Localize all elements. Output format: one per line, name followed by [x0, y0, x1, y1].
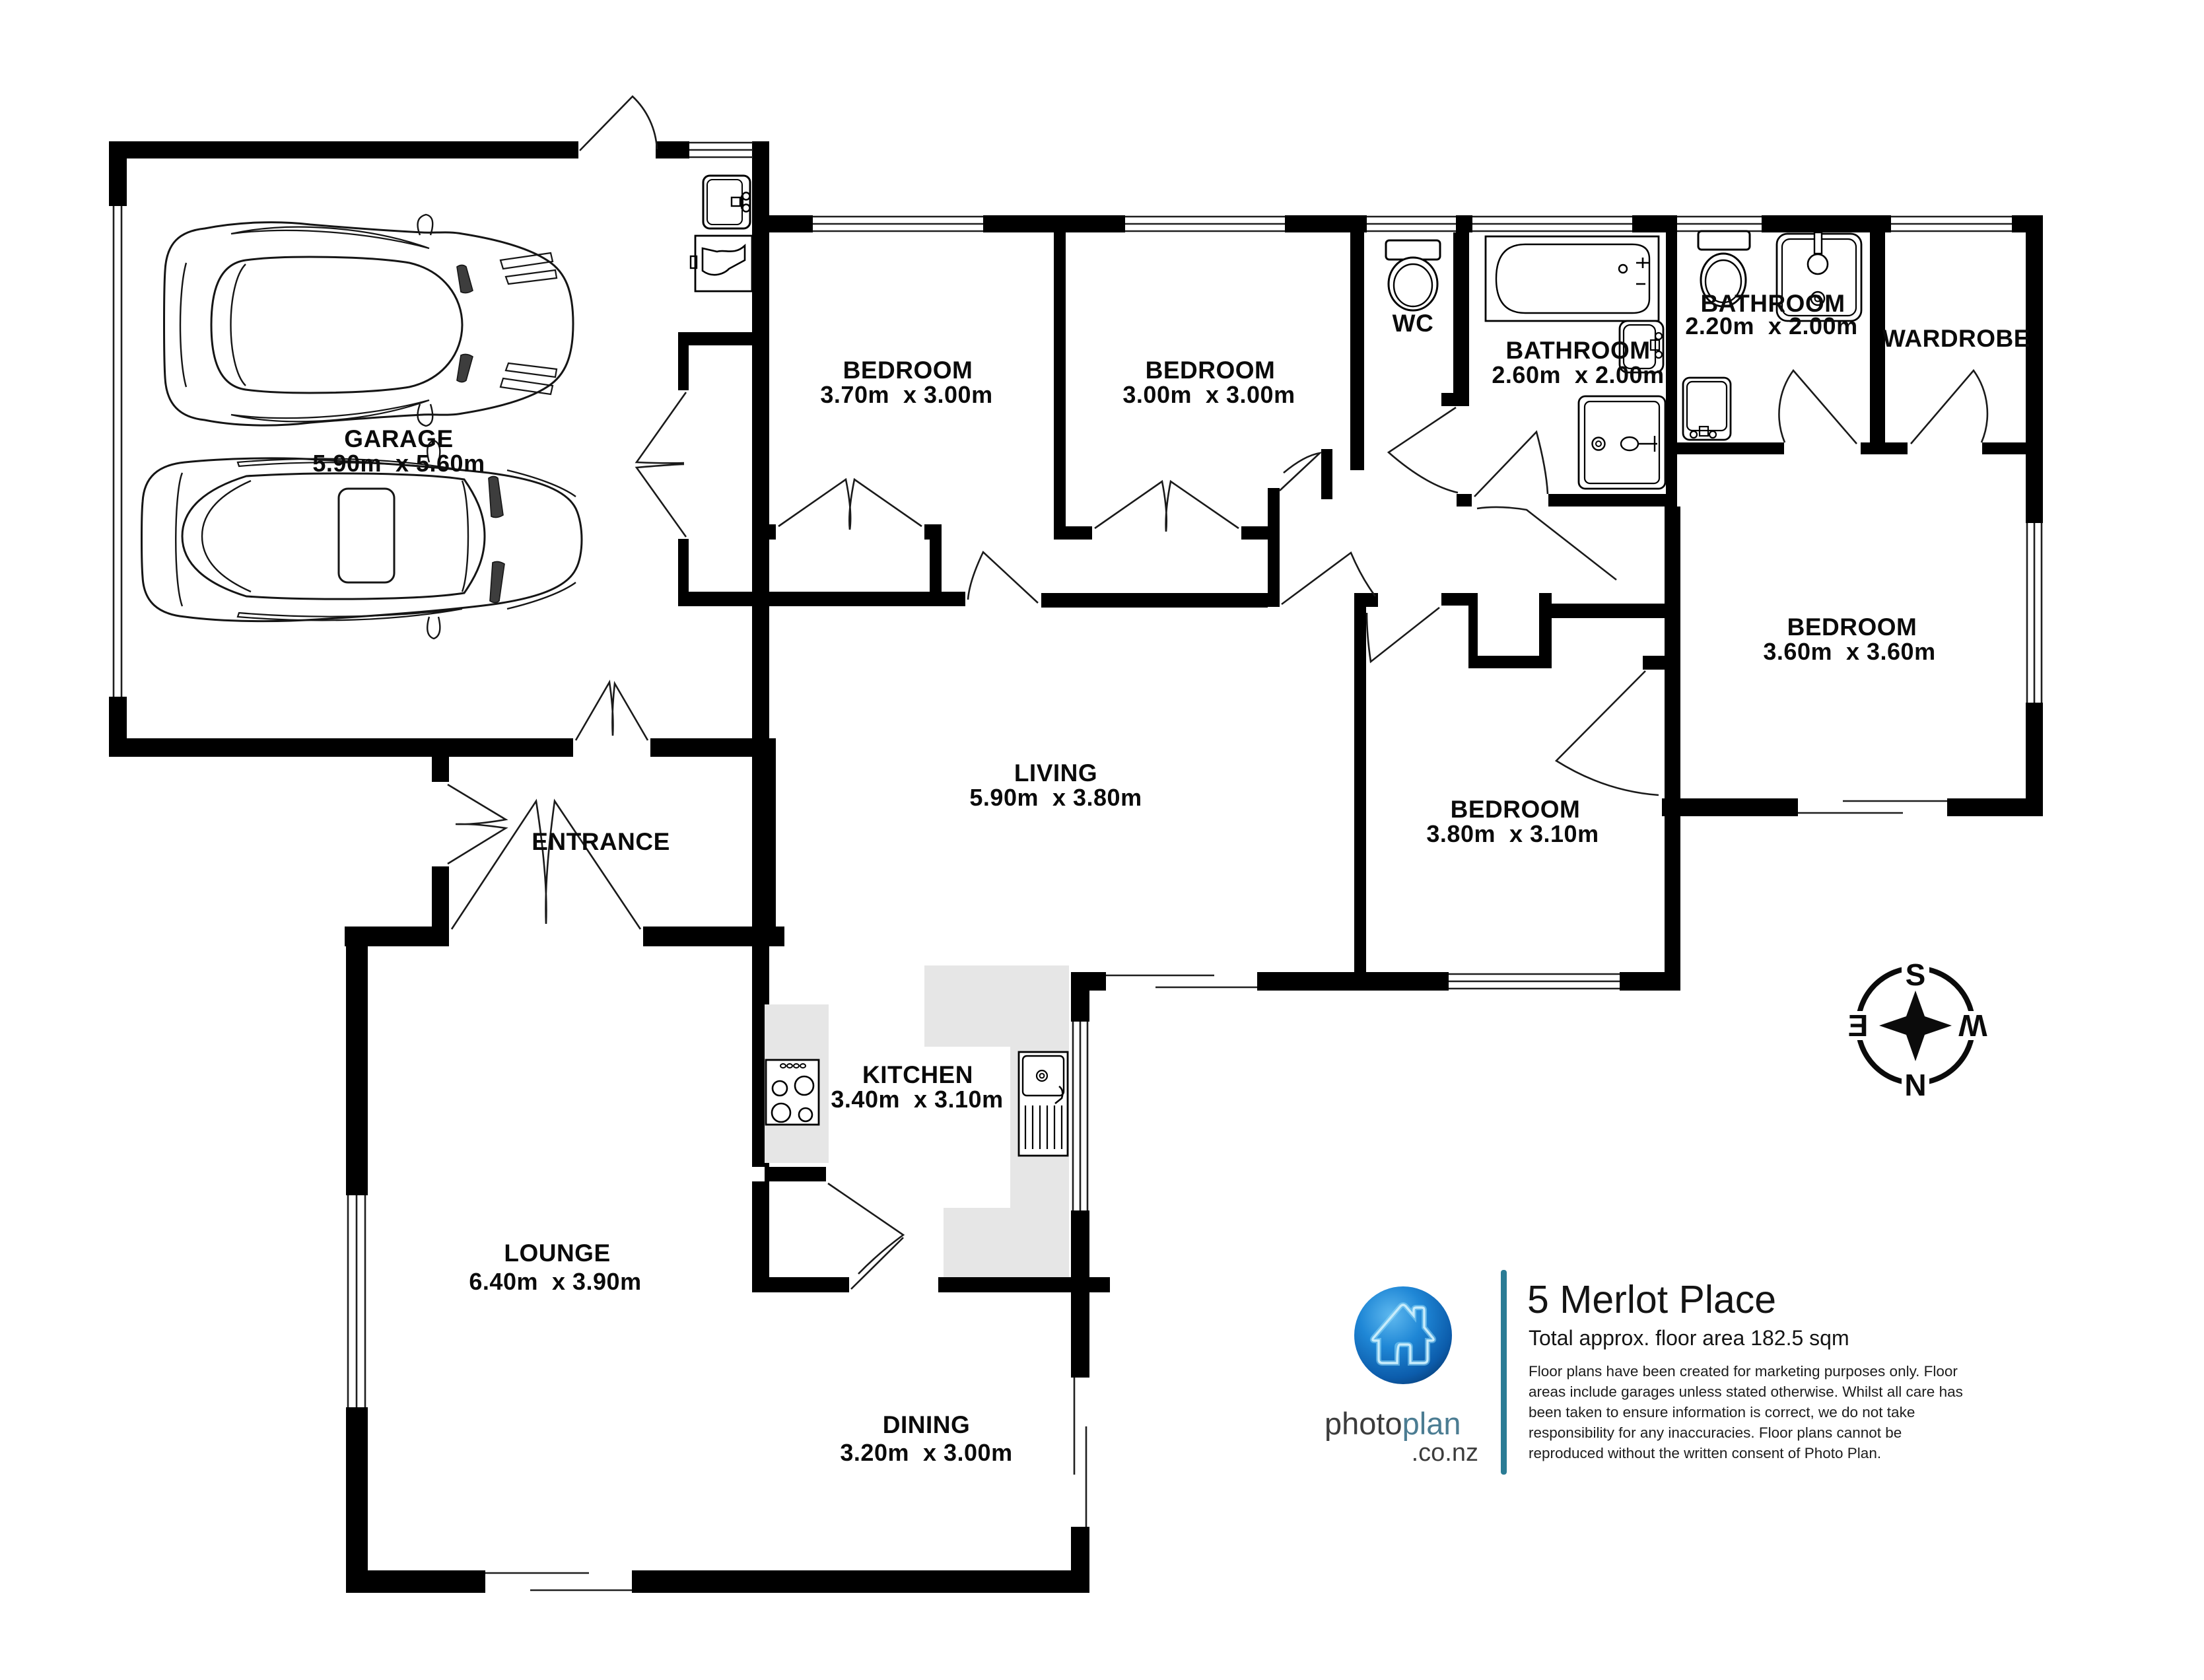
svg-text:5 Merlot Place: 5 Merlot Place	[1527, 1278, 1776, 1321]
svg-text:Floor plans have been created: Floor plans have been created for market…	[1529, 1363, 1958, 1380]
svg-text:photoplan: photoplan	[1325, 1406, 1461, 1441]
svg-text:3.20m x 3.00m: 3.20m x 3.00m	[840, 1439, 1012, 1466]
svg-text:Total approx. floor area 182.5: Total approx. floor area 182.5 sqm	[1529, 1326, 1849, 1350]
svg-text:LIVING: LIVING	[1014, 759, 1097, 787]
svg-text:3.40m x 3.10m: 3.40m x 3.10m	[831, 1086, 1003, 1113]
svg-text:KITCHEN: KITCHEN	[862, 1061, 973, 1088]
svg-text:areas include garages unless s: areas include garages unless stated othe…	[1529, 1383, 1963, 1400]
svg-text:3.80m x 3.10m: 3.80m x 3.10m	[1426, 820, 1599, 847]
svg-text:responsibility for any inaccur: responsibility for any inaccuracies. Flo…	[1529, 1424, 1902, 1441]
svg-text:WARDROBE: WARDROBE	[1882, 325, 2030, 352]
svg-text:reproduced without the written: reproduced without the written consent o…	[1529, 1445, 1881, 1461]
svg-text:W: W	[1958, 1008, 1987, 1043]
svg-text:BEDROOM: BEDROOM	[1451, 796, 1581, 823]
svg-text:BATHROOM: BATHROOM	[1505, 337, 1650, 364]
svg-text:BEDROOM: BEDROOM	[1146, 357, 1276, 384]
svg-text:3.60m x 3.60m: 3.60m x 3.60m	[1763, 638, 1935, 665]
svg-text:.co.nz: .co.nz	[1412, 1439, 1478, 1467]
svg-text:been taken to ensure informati: been taken to ensure information is corr…	[1529, 1404, 1915, 1420]
svg-text:6.40m x 3.90m: 6.40m x 3.90m	[469, 1268, 641, 1295]
svg-text:3.00m x 3.00m: 3.00m x 3.00m	[1122, 381, 1295, 408]
svg-text:2.60m x 2.00m: 2.60m x 2.00m	[1492, 361, 1664, 388]
svg-text:E: E	[1848, 1008, 1869, 1043]
svg-text:S: S	[1906, 958, 1926, 992]
svg-text:3.70m x 3.00m: 3.70m x 3.00m	[820, 381, 992, 408]
svg-text:LOUNGE: LOUNGE	[504, 1240, 610, 1267]
svg-text:WC: WC	[1393, 310, 1434, 337]
svg-text:5.90m x 3.80m: 5.90m x 3.80m	[969, 784, 1142, 811]
svg-text:ENTRANCE: ENTRANCE	[532, 828, 670, 855]
svg-text:GARAGE: GARAGE	[344, 425, 453, 452]
svg-text:BEDROOM: BEDROOM	[843, 357, 973, 384]
svg-text:5.90m x 5.60m: 5.90m x 5.60m	[312, 450, 485, 477]
svg-text:BEDROOM: BEDROOM	[1787, 613, 1917, 641]
svg-text:DINING: DINING	[883, 1411, 971, 1438]
svg-text:N: N	[1904, 1068, 1926, 1102]
svg-text:2.20m x 2.00m: 2.20m x 2.00m	[1685, 312, 1857, 339]
